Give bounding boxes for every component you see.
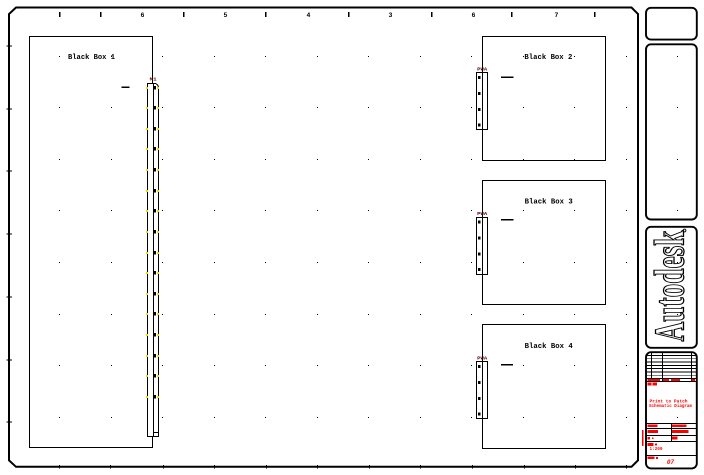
svg-text:5: 5 (224, 12, 228, 19)
svg-text:6: 6 (141, 12, 145, 19)
svg-text:PWA: PWA (477, 213, 488, 217)
svg-text:6: 6 (472, 12, 476, 19)
svg-text:PWA: PWA (477, 357, 488, 361)
svg-text:Black Box 2: Black Box 2 (524, 54, 572, 62)
svg-text:Black Box 1: Black Box 1 (68, 54, 116, 62)
svg-text:Autodesk: Autodesk (648, 230, 694, 341)
svg-text:M1: M1 (150, 77, 157, 83)
svg-text:07: 07 (667, 459, 675, 466)
svg-text:Black Box 3: Black Box 3 (525, 198, 573, 206)
svg-text:4: 4 (307, 12, 311, 19)
svg-text:PWA: PWA (477, 68, 488, 72)
svg-text:Schematic Diagram: Schematic Diagram (649, 404, 692, 409)
svg-text:1:200: 1:200 (650, 448, 663, 452)
svg-text:3: 3 (389, 12, 393, 19)
svg-text:Black Box 4: Black Box 4 (525, 343, 574, 351)
svg-text:7: 7 (555, 12, 559, 19)
